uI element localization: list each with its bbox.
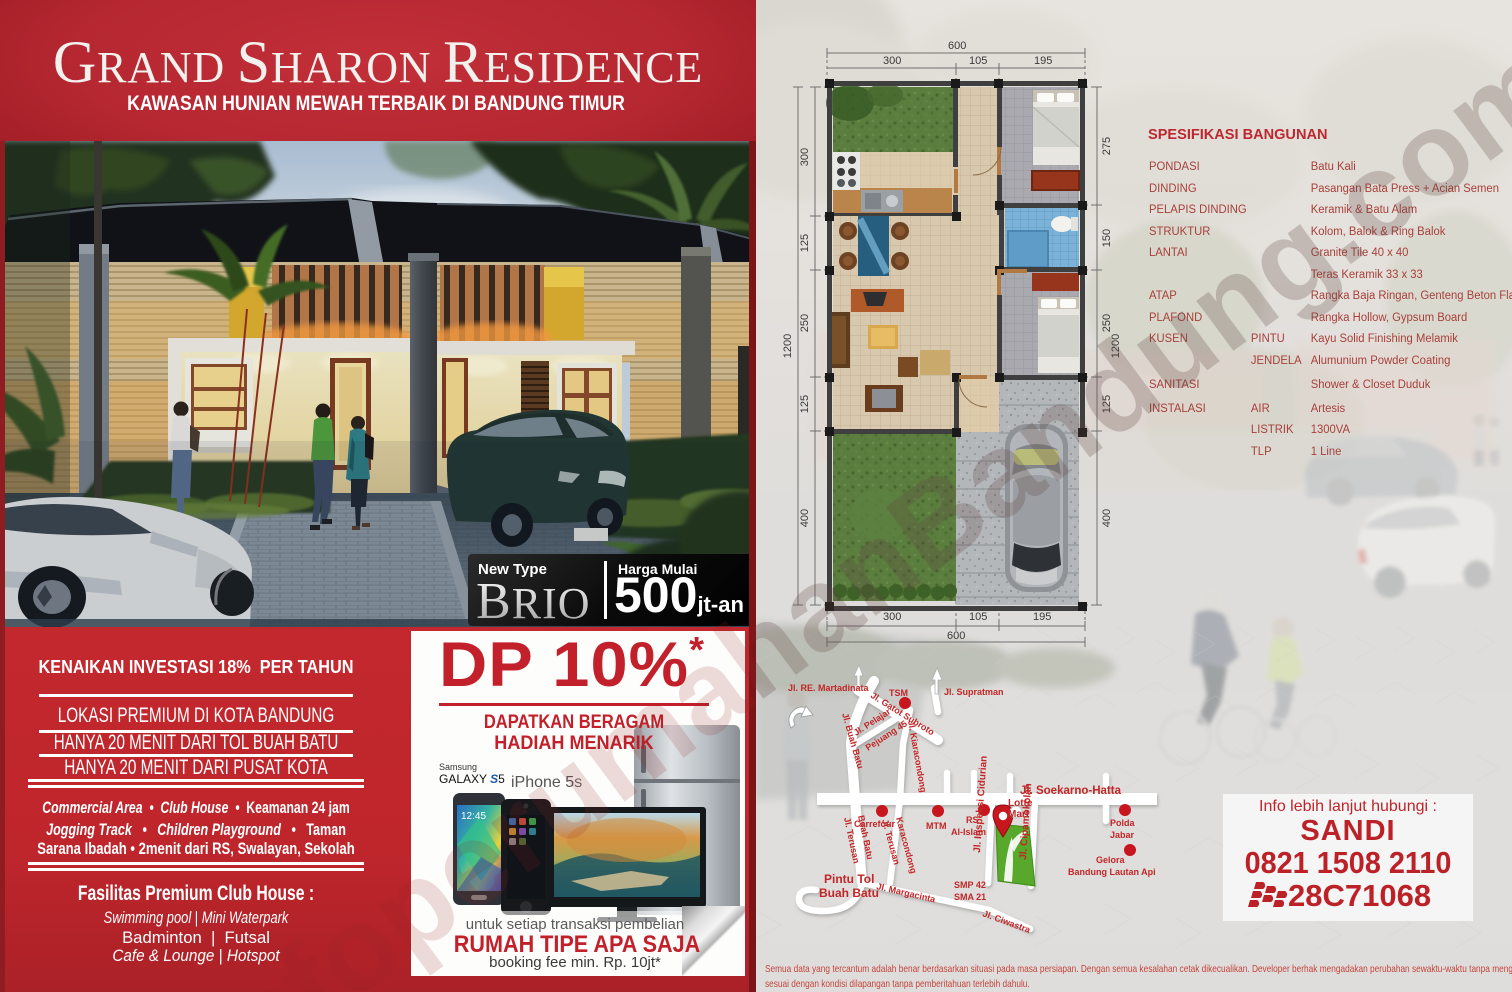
svg-text:300: 300: [883, 55, 901, 67]
svg-text:105: 105: [969, 611, 987, 623]
svg-text:Samsung: Samsung: [439, 762, 477, 772]
svg-text:600: 600: [948, 40, 966, 52]
svg-text:Jl. Margacinta: Jl. Margacinta: [876, 881, 938, 904]
svg-text:Polda: Polda: [1110, 818, 1135, 828]
svg-text:SMA 21: SMA 21: [954, 892, 986, 902]
svg-text:SMP 42: SMP 42: [954, 880, 986, 890]
svg-text:1200: 1200: [1110, 334, 1122, 358]
svg-text:105: 105: [969, 55, 987, 67]
svg-text:250: 250: [799, 314, 811, 332]
svg-text:125: 125: [1101, 395, 1113, 413]
svg-text:Jl. Ciwastra: Jl. Ciwastra: [981, 908, 1032, 935]
svg-text:150: 150: [1101, 229, 1113, 247]
svg-text:275: 275: [1101, 137, 1113, 155]
svg-text:Bandung Lautan Api: Bandung Lautan Api: [1068, 867, 1156, 877]
svg-text:Jabar: Jabar: [1110, 830, 1135, 840]
svg-text:195: 195: [1034, 55, 1052, 67]
svg-text:Gelora: Gelora: [1096, 855, 1126, 865]
svg-text:125: 125: [799, 234, 811, 252]
svg-text:Jl. Soekarno-Hatta: Jl. Soekarno-Hatta: [1020, 785, 1122, 797]
svg-text:Carrefour: Carrefour: [854, 819, 896, 829]
svg-text:1200: 1200: [782, 334, 794, 358]
svg-text:195: 195: [1033, 611, 1051, 623]
svg-text:250: 250: [1101, 314, 1113, 332]
svg-text:600: 600: [947, 630, 965, 642]
svg-text:Pintu Tol: Pintu Tol: [824, 872, 874, 886]
svg-text:Buah Batu: Buah Batu: [819, 886, 879, 900]
svg-text:300: 300: [883, 611, 901, 623]
svg-text:Jl. Supratman: Jl. Supratman: [944, 687, 1004, 697]
svg-text:iPhone 5S: iPhone 5S: [511, 774, 582, 791]
svg-text:Jl. RE. Martadinata: Jl. RE. Martadinata: [788, 683, 870, 693]
svg-text:12:45: 12:45: [461, 811, 486, 822]
svg-text:TSM: TSM: [889, 688, 908, 698]
svg-text:GALAXY S5: GALAXY S5: [439, 772, 505, 786]
svg-text:125: 125: [799, 395, 811, 413]
svg-text:MTM: MTM: [926, 821, 947, 831]
svg-text:400: 400: [1101, 509, 1113, 527]
svg-text:400: 400: [799, 509, 811, 527]
svg-text:300: 300: [799, 148, 811, 166]
